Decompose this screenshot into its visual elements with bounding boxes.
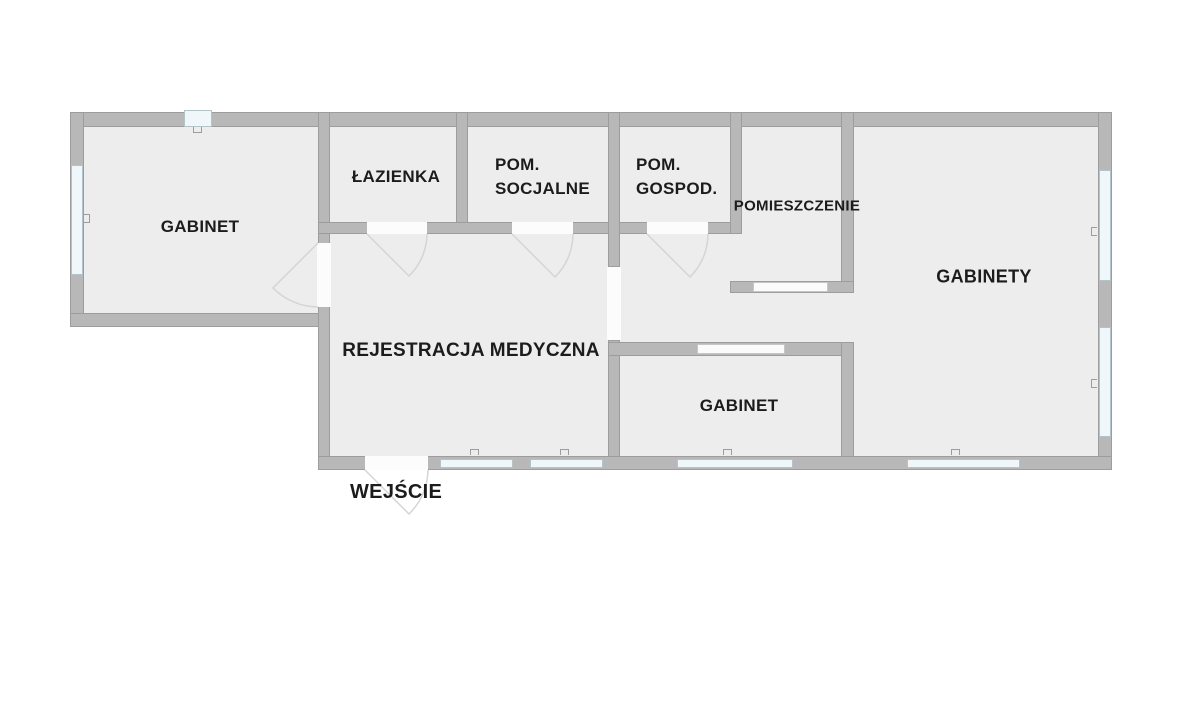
- window-right-upper: [1099, 170, 1111, 281]
- door-opening-lazienka: [367, 222, 427, 234]
- window-handle-icon: [193, 127, 202, 133]
- window-handle-icon: [723, 449, 732, 455]
- window-left: [71, 165, 83, 275]
- window-reception-counter: [697, 344, 785, 354]
- room-label-line: POM.: [495, 153, 590, 177]
- window-handle-icon: [1091, 227, 1097, 236]
- window-right-lower: [1099, 327, 1111, 437]
- window-handle-icon: [84, 214, 90, 223]
- wall-gospod-pomieszczenie: [730, 112, 742, 234]
- window-bottom-c: [677, 459, 793, 468]
- wall-top: [70, 112, 1112, 127]
- room-label-line: POM.: [636, 153, 717, 177]
- wall-socjalne-gospod-upper: [608, 112, 620, 267]
- window-handle-icon: [951, 449, 960, 455]
- room-label-line: GOSPOD.: [636, 177, 717, 201]
- window-pomieszczenie: [753, 282, 828, 292]
- wall-gabinet-bottom-right: [841, 342, 854, 470]
- room-label-pom-socjalne: POM. SOCJALNE: [495, 153, 590, 201]
- passage-opening-rejestracja: [607, 267, 621, 340]
- floor-plan: GABINET ŁAZIENKA POM. SOCJALNE POM. GOSP…: [0, 0, 1200, 720]
- window-bottom-d: [907, 459, 1020, 468]
- wall-socjalne-gospod-lower: [608, 340, 620, 457]
- door-opening-entrance: [365, 456, 428, 470]
- room-label-lazienka: ŁAZIENKA: [352, 167, 440, 187]
- room-label-pomieszczenie: POMIESZCZENIE: [734, 198, 860, 215]
- door-opening-gabinet: [317, 243, 331, 307]
- room-label-gabinet-top-left: GABINET: [161, 217, 240, 237]
- room-label-line: SOCJALNE: [495, 177, 590, 201]
- room-label-rejestracja: REJESTRACJA MEDYCZNA: [342, 340, 600, 362]
- window-handle-icon: [1091, 379, 1097, 388]
- room-label-gabinety: GABINETY: [936, 267, 1031, 288]
- window-handle-icon: [470, 449, 479, 455]
- window-bottom-b: [530, 459, 603, 468]
- wall-lazienka-socjalne: [456, 112, 468, 234]
- room-label-gabinet-bottom: GABINET: [700, 396, 779, 416]
- door-opening-socjalne: [512, 222, 573, 234]
- window-top-small: [184, 110, 212, 127]
- window-bottom-a: [440, 459, 513, 468]
- entrance-label: WEJŚCIE: [350, 481, 442, 504]
- room-label-pom-gospod: POM. GOSPOD.: [636, 153, 717, 201]
- wall-gabinet-bottom: [70, 313, 330, 327]
- window-handle-icon: [560, 449, 569, 455]
- door-opening-gospod: [647, 222, 708, 234]
